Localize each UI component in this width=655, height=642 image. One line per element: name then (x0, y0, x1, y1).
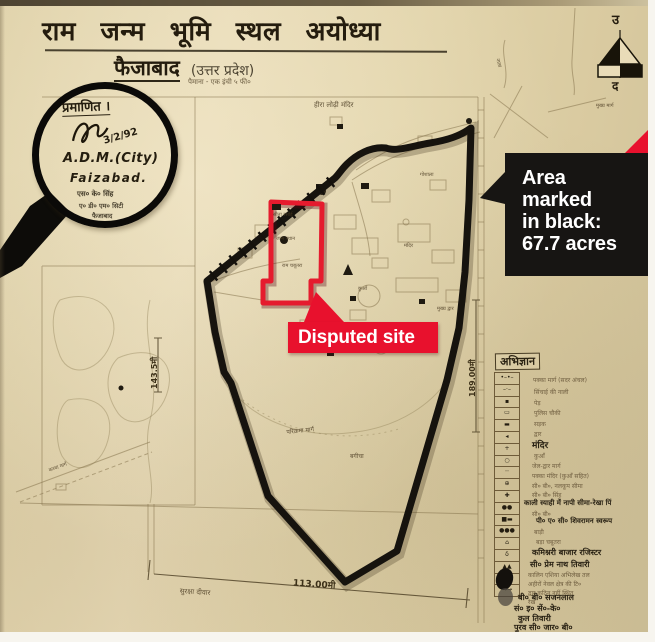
legend-label: सिंचाई की नाली (534, 388, 568, 396)
legend-label: पक्का मार्ग (सदर अंचल) (533, 376, 587, 384)
legend-label: कमिश्नरी बाजार रजिस्टर (532, 547, 601, 558)
disputed-site-callout: Disputed site (288, 322, 438, 353)
north-arrow-icon (596, 30, 648, 78)
map-label: मुख्य द्वार (437, 306, 454, 312)
stamp-place: Faizabad. (70, 171, 147, 185)
scan-edge-top (0, 0, 655, 6)
red-corner-fold (625, 130, 648, 153)
area-callout: Area marked in black: 67.7 acres (505, 153, 650, 276)
map-label: मंदिर (404, 243, 413, 249)
legend-label: बड़ा चबूतरा (536, 538, 561, 546)
legend-label: बी० बी० सजनलाल (518, 592, 574, 603)
scan-edge-bottom (0, 632, 655, 642)
legend-label: सड़क (534, 420, 546, 428)
ink-blot (498, 588, 513, 606)
map-label: सीता रसोई (273, 212, 293, 218)
legend-label: मंदिर (532, 438, 548, 451)
acre-boundary (207, 128, 473, 585)
legend-label: कुआँ (534, 452, 545, 460)
legend-label: पक्का मंदिर (कुआँ सहित) (532, 472, 589, 480)
dimension-left: 143.5मी (149, 357, 160, 389)
map-title-block: राम जन्म भूमि स्थल अयोध्या फैजाबाद (उत्त… (42, 12, 381, 48)
map-label: गोशाला (420, 172, 434, 178)
scan-edge-left (0, 6, 5, 633)
area-callout-line: Area (522, 167, 650, 189)
legend-label: कालिन एशिया अभिलेख तल (528, 571, 590, 579)
stamp-authority: A.D.M.(City) (63, 151, 158, 166)
dimension-right: 189.00मी (467, 359, 478, 397)
legend-label: सी० बी० सिंह (532, 491, 561, 499)
legend-label: अहीरों नेवल क्षेत्र की टि० (528, 580, 581, 588)
area-callout-line: in black: (522, 211, 650, 233)
legend-label: पेड़ (534, 399, 541, 407)
scan-edge-right (648, 0, 655, 642)
map-scale-note: पैमाना - एक इंची ५ फी० (188, 78, 251, 87)
map-label: राम चबूतरा (282, 263, 302, 269)
map-title: राम जन्म भूमि स्थल अयोध्या (42, 12, 381, 48)
legend-label: पी० ए० सी० शिवरामन स्वरूप (536, 517, 612, 526)
legend-label: सी० बी०, नलकूप सीमा (532, 482, 583, 490)
legend-label: पुलिस चौकी (534, 409, 561, 417)
legend-label: जेल-द्वार मार्ग (532, 462, 561, 470)
map-subtitle-city: फैजाबाद (114, 56, 180, 82)
area-callout-line: marked (522, 189, 650, 211)
map-label: बगीचा (350, 452, 364, 460)
map-label: हीरा लोढ़ी मंदिर (314, 101, 354, 110)
legend-title: अभिज्ञान (495, 353, 540, 371)
compass-south-label: द (612, 77, 618, 94)
map-label: जन्म स्थान (276, 236, 295, 242)
area-callout-line: 67.7 acres (522, 233, 650, 255)
legend-symbol-column: •–•––·–▪▭▬◂+○┈⊕✚●●■▬●●●⌂δ▲▲●▬→→ (494, 373, 520, 597)
news-map-graphic: राम जन्म भूमि स्थल अयोध्या फैजाबाद (उत्त… (0, 0, 655, 642)
legend-label: काली स्याही में नापी सीमा-रेखा पिं (524, 499, 611, 508)
compass-north-label: उ (612, 10, 619, 28)
stamp-seal-line: फैजाबाद (92, 211, 112, 220)
legend-label: द्वार (534, 430, 541, 438)
map-label: मुख्य मार्ग (596, 103, 614, 109)
map-label: कुआँ (358, 286, 367, 292)
legend-label: सी० प्रेम नाथ तिवारी (530, 559, 589, 570)
stamp-seal-line: एस० के० सिंह (77, 190, 113, 199)
legend-label: बाड़ी (534, 528, 544, 536)
map-subtitle-state: (उत्तर प्रदेश) (191, 63, 254, 79)
stamp-seal-line: ए० डी० एम० सिटी (79, 201, 123, 210)
